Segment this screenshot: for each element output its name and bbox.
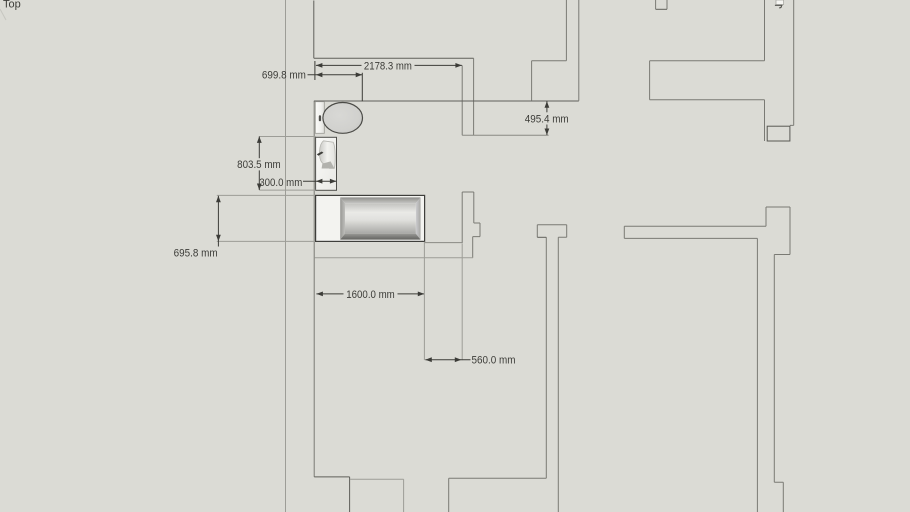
svg-text:Top: Top xyxy=(3,0,21,11)
svg-text:2178.3 mm: 2178.3 mm xyxy=(364,60,412,72)
svg-text:300.0 mm: 300.0 mm xyxy=(259,177,302,189)
svg-text:699.8 mm: 699.8 mm xyxy=(262,70,306,82)
svg-text:695.8 mm: 695.8 mm xyxy=(174,247,218,259)
svg-text:560.0 mm: 560.0 mm xyxy=(472,355,516,367)
svg-text:803.5 mm: 803.5 mm xyxy=(237,159,281,171)
svg-text:1600.0 mm: 1600.0 mm xyxy=(346,289,395,301)
svg-text:495.4 mm: 495.4 mm xyxy=(525,113,569,125)
